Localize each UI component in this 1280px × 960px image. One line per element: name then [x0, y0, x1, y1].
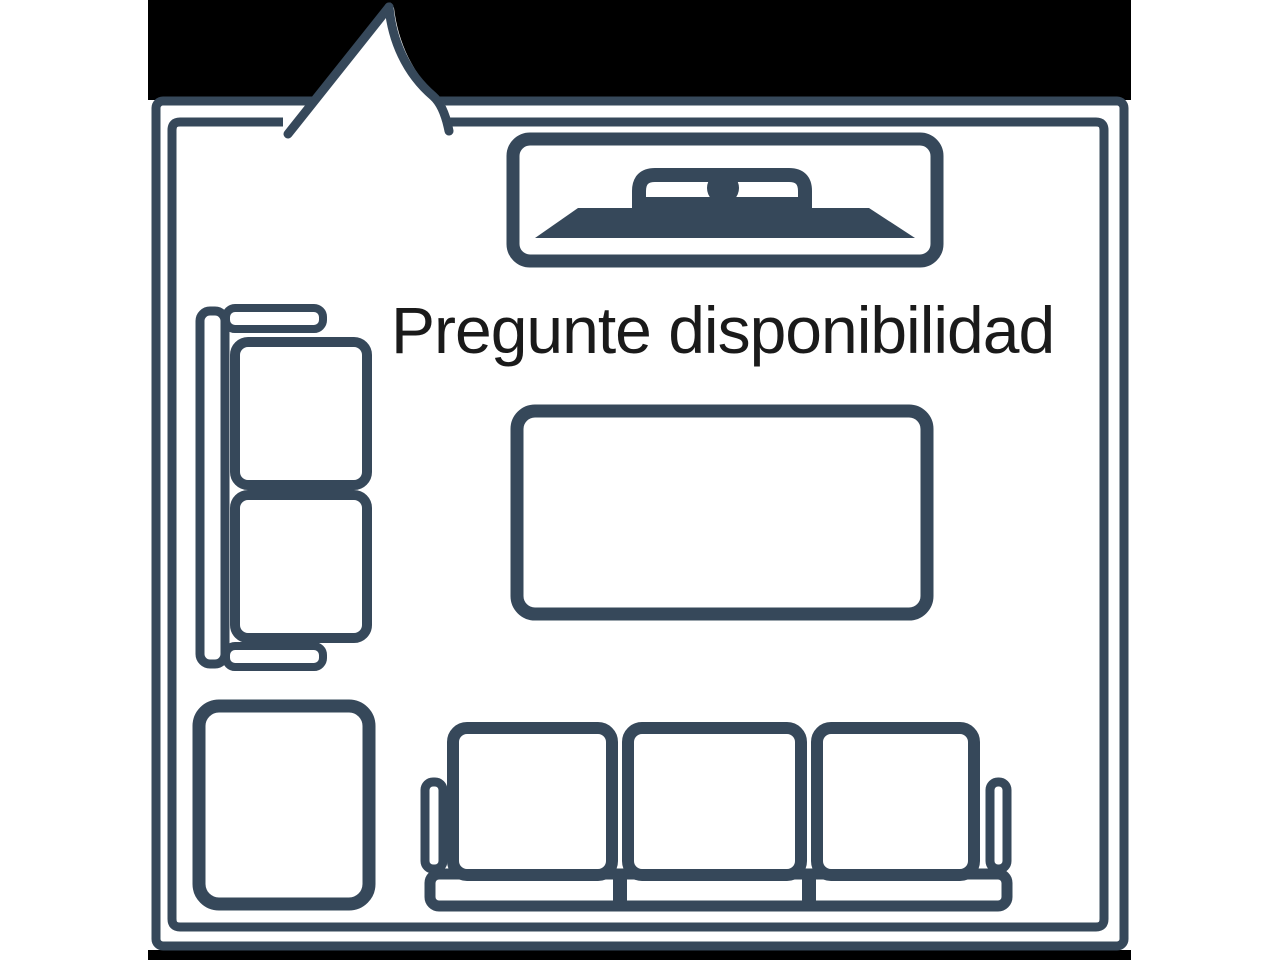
sofa-rail-divider-2: [802, 869, 816, 911]
sofa-arm-right: [990, 782, 1007, 869]
loveseat-icon: [200, 308, 367, 667]
coffee-table-icon: [517, 411, 927, 614]
loveseat-arm-bottom: [226, 646, 323, 667]
sofa-cushion-3: [817, 728, 974, 875]
loveseat-back: [200, 311, 225, 664]
tv-console-icon: [513, 139, 937, 261]
sofa-rail-divider-1: [613, 869, 627, 911]
ottoman-outline: [199, 706, 369, 904]
top-banner: [148, 0, 1131, 100]
loveseat-cushion-top: [235, 342, 367, 485]
sofa-icon: [425, 728, 1007, 911]
loveseat-cushion-bottom: [235, 495, 367, 638]
tv-knob-circle: [707, 172, 739, 204]
sofa-cushion-2: [628, 728, 801, 875]
sofa-cushion-1: [453, 728, 612, 875]
floor-plan-figure: Pregunte disponibilidad: [0, 0, 1280, 960]
loveseat-arm-top: [226, 308, 323, 329]
availability-annotation: Pregunte disponibilidad: [391, 297, 1054, 363]
floor-plan-canvas: [0, 0, 1280, 960]
sofa-arm-left: [425, 782, 443, 869]
bottom-banner-strip: [148, 950, 1131, 960]
ottoman-icon: [199, 706, 369, 904]
coffee-table-outline: [517, 411, 927, 614]
